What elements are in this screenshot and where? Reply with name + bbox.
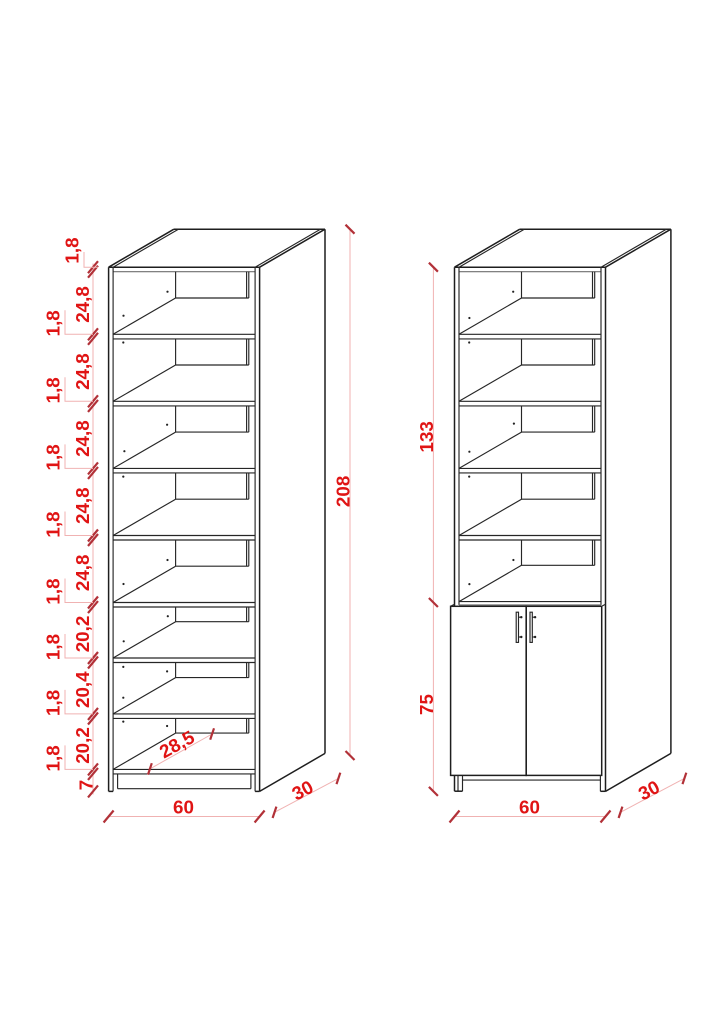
svg-text:60: 60	[173, 797, 194, 818]
svg-text:20,4: 20,4	[72, 671, 93, 708]
svg-text:24,8: 24,8	[72, 487, 93, 524]
svg-text:20,2: 20,2	[72, 727, 93, 764]
svg-text:7: 7	[76, 780, 97, 790]
svg-text:1,8: 1,8	[43, 634, 64, 660]
svg-text:75: 75	[416, 694, 437, 715]
svg-text:1,8: 1,8	[43, 690, 64, 716]
svg-text:24,8: 24,8	[72, 420, 93, 457]
svg-text:1,8: 1,8	[43, 745, 64, 771]
svg-text:24,8: 24,8	[72, 555, 93, 592]
svg-text:1,8: 1,8	[43, 310, 64, 336]
svg-text:1,8: 1,8	[43, 511, 64, 537]
svg-text:20,2: 20,2	[72, 616, 93, 653]
svg-text:1,8: 1,8	[43, 377, 64, 403]
svg-text:133: 133	[416, 421, 437, 452]
svg-text:1,8: 1,8	[43, 444, 64, 470]
svg-text:60: 60	[519, 797, 540, 818]
svg-text:1,8: 1,8	[62, 237, 83, 263]
svg-text:24,8: 24,8	[72, 353, 93, 390]
svg-text:208: 208	[332, 476, 353, 507]
svg-text:24,8: 24,8	[72, 286, 93, 323]
svg-text:1,8: 1,8	[43, 578, 64, 604]
